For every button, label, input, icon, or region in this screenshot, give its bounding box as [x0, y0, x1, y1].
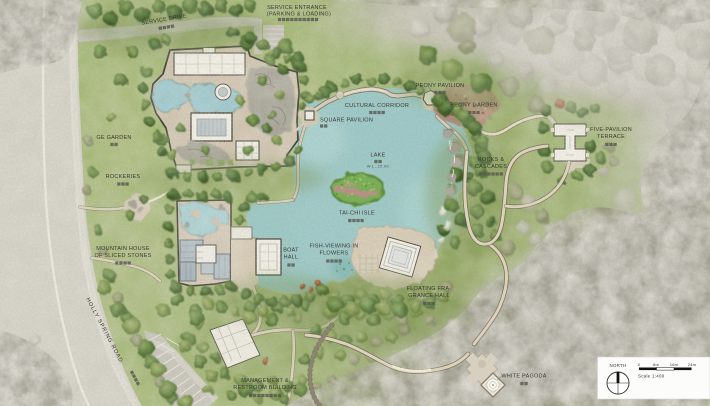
svg-text:SQUARE PAVILION: SQUARE PAVILION [320, 118, 373, 124]
svg-text:24m: 24m [688, 362, 697, 367]
svg-text:RESTROOM BUILDING: RESTROOM BUILDING [233, 385, 297, 391]
svg-text:W.L. 22.00: W.L. 22.00 [367, 165, 389, 169]
svg-text:WHITE PAGODA: WHITE PAGODA [501, 374, 546, 380]
svg-text:TERRACE: TERRACE [597, 134, 625, 140]
svg-text:OF SLICED STONES: OF SLICED STONES [94, 253, 151, 259]
svg-text:CASCADES: CASCADES [475, 164, 507, 170]
svg-text:ROCKS &: ROCKS & [478, 157, 505, 163]
svg-text:LAKE: LAKE [370, 153, 385, 159]
svg-text:8m: 8m [653, 362, 659, 367]
svg-text:BOAT: BOAT [283, 248, 299, 254]
svg-text:FIVE-PAVILION: FIVE-PAVILION [590, 127, 632, 133]
svg-text:ROCKERIES: ROCKERIES [106, 174, 141, 180]
svg-text:16m: 16m [670, 362, 679, 367]
svg-text:NORTH: NORTH [609, 363, 626, 368]
svg-text:Scale 1:400: Scale 1:400 [638, 374, 665, 379]
svg-text:CULTURAL CORRIDOR: CULTURAL CORRIDOR [345, 103, 409, 109]
svg-text:FLOWERS: FLOWERS [320, 251, 349, 257]
svg-text:HALL: HALL [284, 255, 299, 261]
svg-text:PEONY PAVILION: PEONY PAVILION [416, 83, 465, 89]
svg-text:MANAGEMENT &: MANAGEMENT & [241, 378, 289, 384]
svg-text:FISH-VIEWING IN: FISH-VIEWING IN [310, 244, 359, 250]
svg-text:FLOATING FRA-: FLOATING FRA- [407, 286, 452, 292]
svg-text:SERVICE ENTRANCE: SERVICE ENTRANCE [267, 5, 327, 11]
svg-text:(PARKING & LOADING): (PARKING & LOADING) [267, 12, 331, 18]
svg-text:PEONY GARDEN: PEONY GARDEN [450, 103, 497, 109]
svg-text:GRANCE HALL: GRANCE HALL [408, 293, 450, 299]
svg-text:TAI-CHI ISLE: TAI-CHI ISLE [339, 211, 375, 217]
svg-text:GE GARDEN: GE GARDEN [96, 135, 131, 141]
svg-text:MOUNTAIN HOUSE: MOUNTAIN HOUSE [96, 246, 150, 252]
